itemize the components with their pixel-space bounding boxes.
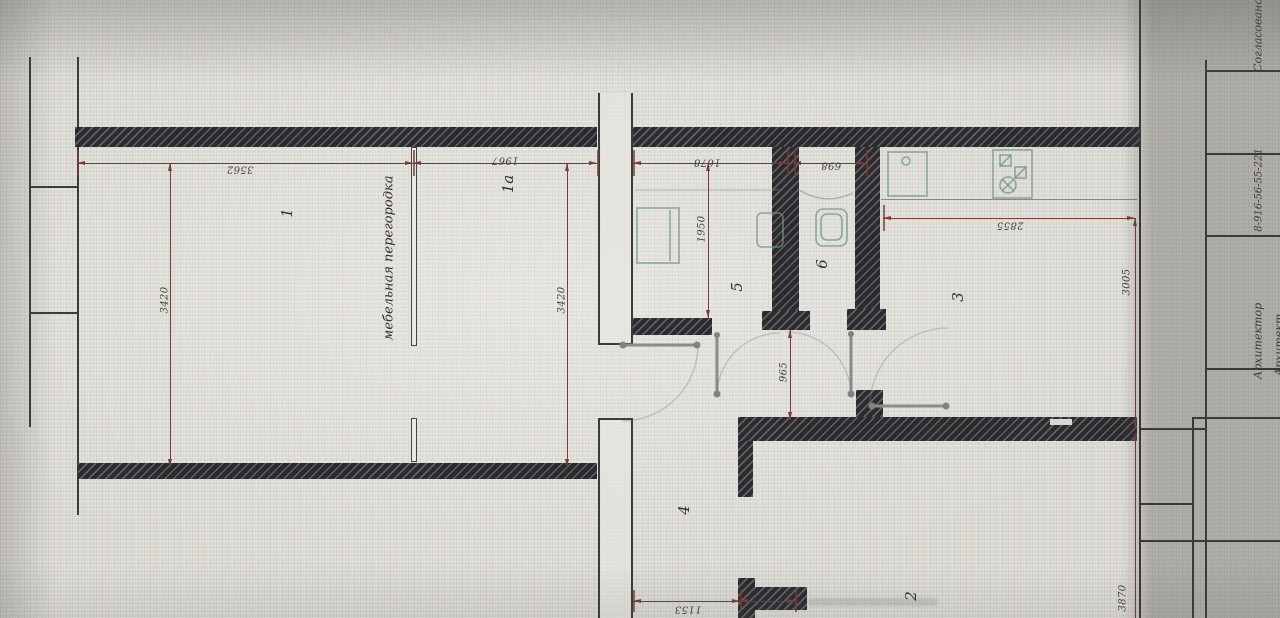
dim-arrow (168, 163, 172, 171)
dim-arrow (740, 599, 748, 603)
dim-text: 1678 (693, 157, 720, 168)
dim-arrow (633, 599, 641, 603)
dim-arrow (168, 459, 172, 467)
dim-text: 3420 (557, 286, 568, 313)
kitchen-sink-icon (888, 152, 927, 196)
floor-plan-scan: 3562 1967 1678 698 2855 3420 3420 1950 9… (0, 0, 1280, 618)
dim-arrow (589, 161, 597, 165)
dim-arrow (1133, 433, 1137, 441)
dim-ext (866, 150, 868, 176)
dim-text: 3005 (1122, 268, 1133, 295)
dim-text: 1967 (491, 155, 518, 166)
dim-arrow (788, 412, 792, 420)
dim-arrow (77, 161, 85, 165)
toilet-icon (816, 209, 847, 246)
dim-text: 965 (779, 362, 790, 382)
dim-text: 3420 (160, 286, 171, 313)
circle-shape (943, 403, 950, 410)
furniture-partition-label: мебельная перегородка (382, 176, 397, 341)
dim-arrow (883, 216, 891, 220)
dim-line (567, 163, 568, 467)
sink-icon (757, 213, 783, 247)
dim-arrow (858, 161, 866, 165)
dim-arrow (788, 330, 792, 338)
path-shape (717, 333, 780, 396)
path-shape (870, 328, 948, 406)
dim-arrow (793, 161, 801, 165)
room-label-4: 4 (675, 505, 693, 515)
path-shape (799, 190, 853, 199)
titleblock-architect-label: Архитект (1273, 314, 1280, 377)
dim-text: 3562 (226, 164, 253, 175)
dim-arrow (405, 161, 413, 165)
titleblock-approved-label: Согласовано (1252, 0, 1265, 72)
rect-shape (637, 208, 679, 263)
circle-shape (620, 342, 627, 349)
circle-shape (902, 157, 910, 165)
line-shape (1000, 155, 1011, 166)
dim-line (1135, 433, 1136, 618)
dim-line (633, 601, 740, 602)
dim-arrow (1133, 420, 1137, 428)
line-shape (1015, 167, 1026, 178)
stove-icon (993, 150, 1032, 198)
dim-line (790, 330, 791, 420)
dim-line (170, 163, 171, 467)
dim-arrow (565, 163, 569, 171)
room-label-1a: 1а (499, 175, 517, 194)
circle-shape (714, 332, 720, 338)
dim-arrow (787, 599, 795, 603)
titleblock-architect-label: Архитектор (1252, 303, 1265, 379)
circle-shape (848, 331, 854, 337)
basin-icon (799, 190, 853, 199)
dim-arrow (633, 161, 641, 165)
dim-text: 698 (821, 160, 841, 171)
dim-arrow (565, 459, 569, 467)
dim-text: 2855 (996, 220, 1023, 231)
path-shape (622, 345, 698, 421)
room-label-2: 2 (902, 591, 920, 601)
dim-ext (597, 150, 599, 176)
path-shape (787, 332, 851, 396)
rect-shape (757, 213, 783, 247)
room-label-3: 3 (949, 292, 967, 302)
dim-arrow (413, 161, 421, 165)
dim-line (1135, 218, 1136, 428)
dim-text: 1950 (697, 215, 708, 242)
room-label-1: 1 (278, 208, 296, 218)
dim-text: 1153 (674, 604, 701, 615)
dim-arrow (706, 310, 710, 318)
dim-arrow (1133, 218, 1137, 226)
room-label-5: 5 (728, 282, 746, 292)
rect-shape (821, 214, 842, 240)
dim-line (708, 163, 709, 318)
rect-shape (888, 152, 927, 196)
circle-shape (694, 342, 701, 349)
titleblock-phone: 8-916-56-55-221 (1254, 148, 1265, 232)
fixtures-layer (0, 0, 1280, 618)
dim-arrow (779, 161, 787, 165)
dim-text: 3870 (1118, 584, 1129, 611)
room-label-6: 6 (813, 259, 831, 269)
dim-arrow (732, 599, 740, 603)
dim-ext (795, 590, 797, 612)
dim-ext (787, 150, 789, 176)
